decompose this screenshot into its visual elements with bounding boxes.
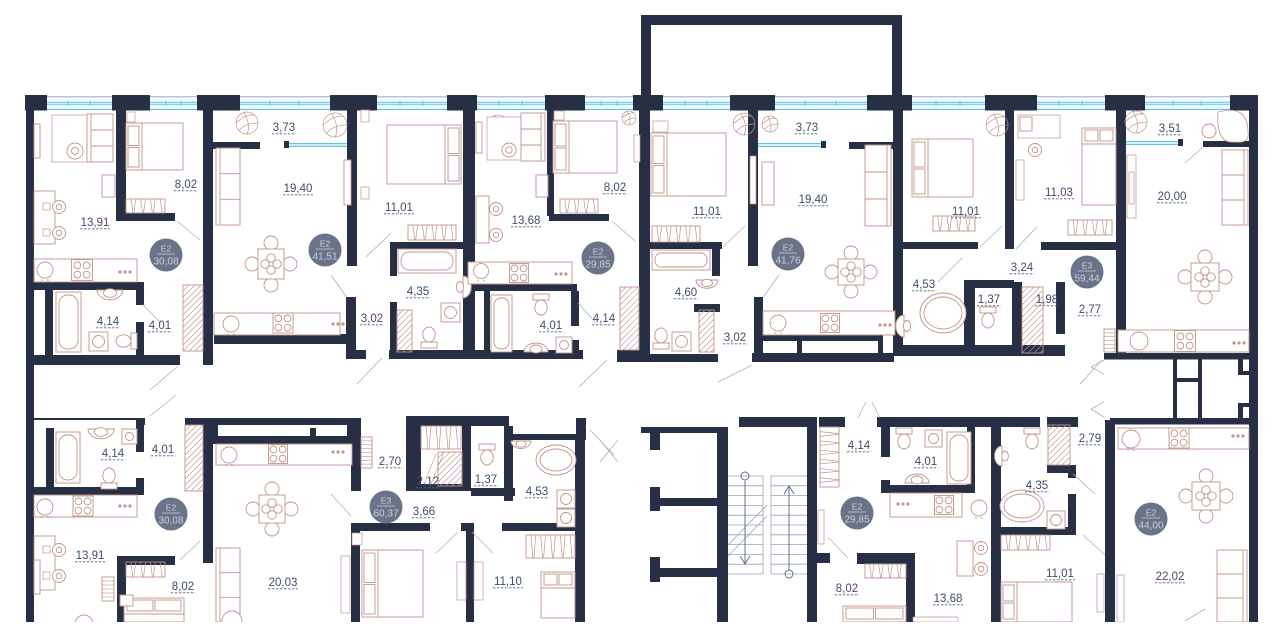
svg-text:2,12: 2,12 <box>417 476 439 488</box>
svg-text:3,66: 3,66 <box>413 506 435 518</box>
svg-text:30,08: 30,08 <box>153 257 178 268</box>
svg-text:E2: E2 <box>783 243 794 253</box>
svg-text:41,76: 41,76 <box>775 256 800 267</box>
svg-text:20,03: 20,03 <box>269 577 298 589</box>
svg-text:19,40: 19,40 <box>284 183 313 195</box>
svg-text:13,91: 13,91 <box>76 550 105 562</box>
svg-text:1,98: 1,98 <box>1036 294 1058 306</box>
svg-text:4,01: 4,01 <box>149 320 171 332</box>
svg-text:4,01: 4,01 <box>540 320 562 332</box>
svg-text:4,35: 4,35 <box>407 286 429 298</box>
svg-text:20,00: 20,00 <box>1158 191 1187 203</box>
svg-text:11,03: 11,03 <box>1045 187 1073 199</box>
svg-text:13,68: 13,68 <box>512 215 541 227</box>
svg-text:59,44: 59,44 <box>1074 274 1099 285</box>
svg-text:22,02: 22,02 <box>1156 571 1185 583</box>
svg-text:4,60: 4,60 <box>675 287 697 299</box>
svg-text:3,51: 3,51 <box>1159 123 1181 135</box>
svg-text:4,14: 4,14 <box>97 316 120 328</box>
svg-text:3,73: 3,73 <box>796 122 818 134</box>
svg-text:E2: E2 <box>593 247 604 257</box>
svg-text:E2: E2 <box>320 239 331 249</box>
svg-text:13,91: 13,91 <box>81 217 110 229</box>
svg-text:3,24: 3,24 <box>1011 262 1034 274</box>
svg-text:1,37: 1,37 <box>475 474 497 486</box>
svg-text:13,68: 13,68 <box>934 593 963 605</box>
svg-text:60,37: 60,37 <box>373 509 398 520</box>
svg-text:11,10: 11,10 <box>494 576 522 588</box>
svg-text:11,01: 11,01 <box>952 206 980 218</box>
svg-text:E3: E3 <box>1082 261 1093 271</box>
svg-text:11,01: 11,01 <box>1046 568 1074 580</box>
svg-text:2,77: 2,77 <box>1079 304 1101 316</box>
svg-text:30,08: 30,08 <box>158 516 183 527</box>
svg-text:11,01: 11,01 <box>693 206 721 218</box>
svg-text:3,73: 3,73 <box>273 122 295 134</box>
svg-text:2,79: 2,79 <box>1079 433 1101 445</box>
svg-text:E2: E2 <box>161 244 172 254</box>
svg-text:4,53: 4,53 <box>526 486 548 498</box>
svg-text:4,01: 4,01 <box>152 444 174 456</box>
svg-text:4,01: 4,01 <box>915 456 937 468</box>
svg-text:44,00: 44,00 <box>1138 521 1163 532</box>
svg-text:2,70: 2,70 <box>379 456 401 468</box>
svg-text:8,02: 8,02 <box>604 182 626 194</box>
svg-text:11,01: 11,01 <box>385 202 413 214</box>
svg-text:3,02: 3,02 <box>361 313 383 325</box>
svg-text:4,14: 4,14 <box>593 313 616 325</box>
svg-text:E2: E2 <box>166 503 177 513</box>
svg-text:E2: E2 <box>852 502 863 512</box>
svg-text:4,14: 4,14 <box>848 440 871 452</box>
svg-text:29,85: 29,85 <box>844 515 869 526</box>
svg-text:4,35: 4,35 <box>1026 480 1048 492</box>
svg-text:4,53: 4,53 <box>913 279 935 291</box>
svg-text:8,02: 8,02 <box>172 581 194 593</box>
svg-text:E3: E3 <box>381 496 392 506</box>
svg-text:3,02: 3,02 <box>724 332 746 344</box>
svg-text:8,02: 8,02 <box>836 583 858 595</box>
svg-text:41,51: 41,51 <box>312 252 337 263</box>
svg-text:8,02: 8,02 <box>175 179 197 191</box>
svg-text:19,40: 19,40 <box>799 194 828 206</box>
svg-text:1,37: 1,37 <box>978 294 1000 306</box>
svg-text:4,14: 4,14 <box>102 448 125 460</box>
svg-text:E2: E2 <box>1146 508 1157 518</box>
svg-text:29,85: 29,85 <box>585 260 610 271</box>
